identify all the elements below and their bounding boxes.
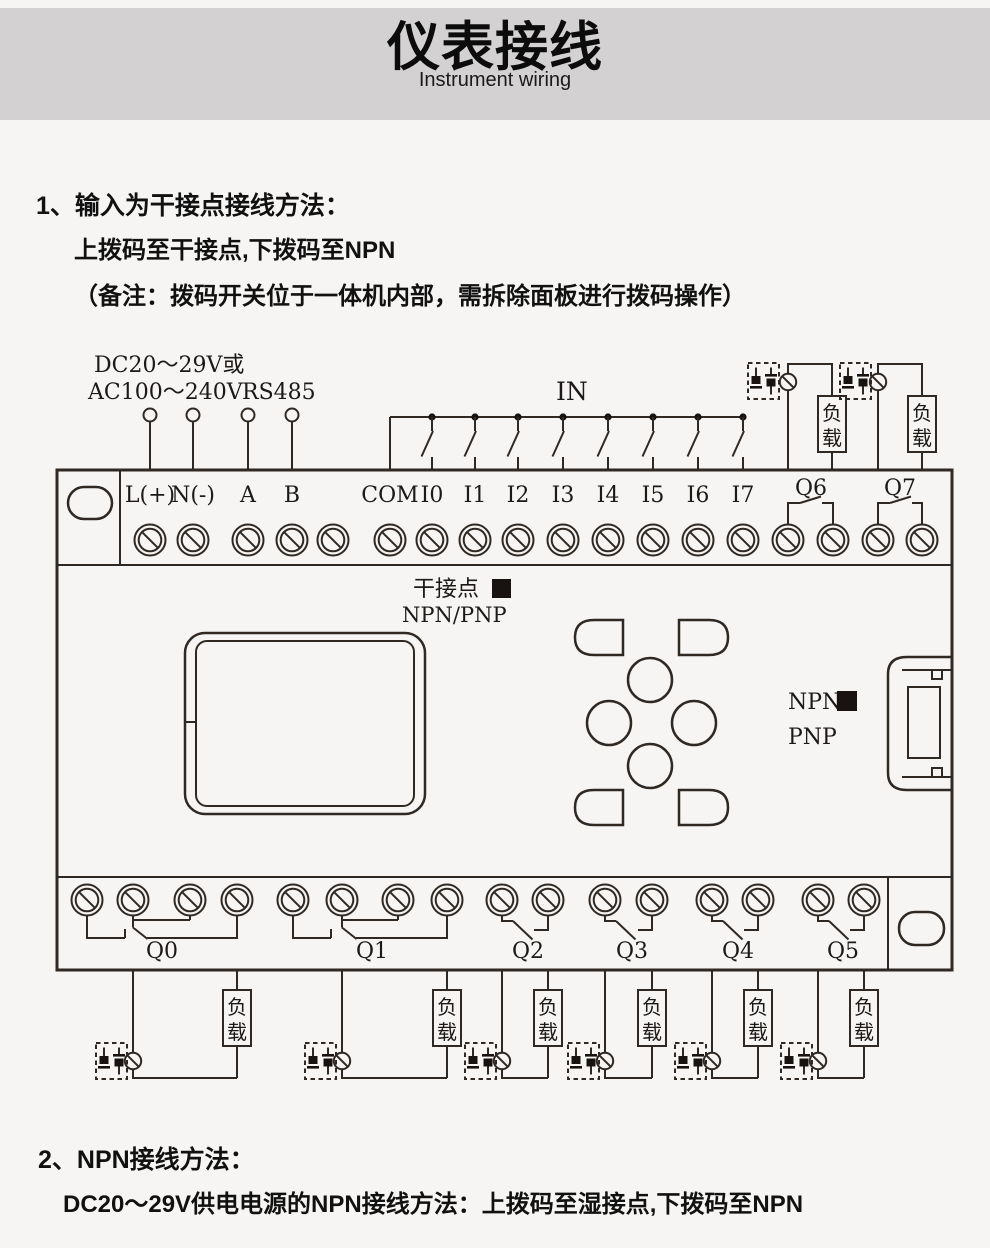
input-switch-i3 xyxy=(553,413,567,470)
input-switch-i0 xyxy=(422,413,436,470)
svg-text:负: 负 xyxy=(912,401,932,425)
in-label: IN xyxy=(556,377,588,406)
q7-suppressor xyxy=(840,363,871,399)
q6-load: 负 载 xyxy=(818,396,846,452)
in-bus-wire xyxy=(390,417,743,470)
svg-text:载: 载 xyxy=(642,1020,662,1044)
input-switch-i7 xyxy=(733,413,747,470)
q2-load: 负 载 xyxy=(534,990,562,1046)
svg-text:I3: I3 xyxy=(552,483,575,508)
q1-suppressor xyxy=(305,1043,336,1079)
q3-suppressor xyxy=(568,1043,599,1079)
key-up[interactable] xyxy=(628,658,672,702)
section2-line2: DC20～29V供电电源的NPN接线方法：上拨码至湿接点,下拨码至NPN xyxy=(63,1184,803,1219)
npn-label: NPN xyxy=(788,690,841,715)
svg-text:Q2: Q2 xyxy=(512,939,544,964)
svg-text:Q4: Q4 xyxy=(722,939,754,964)
svg-text:负: 负 xyxy=(854,995,874,1019)
dry-contact-indicator-square xyxy=(492,579,511,598)
power-label-line2: AC100～240V xyxy=(87,380,244,405)
svg-text:I6: I6 xyxy=(687,483,710,508)
q0-load: 负 载 xyxy=(223,990,251,1046)
svg-text:载: 载 xyxy=(538,1020,558,1044)
side-connector xyxy=(888,657,951,790)
display-screen xyxy=(185,633,425,814)
input-switch-i6 xyxy=(688,413,702,470)
q4-load: 负 载 xyxy=(744,990,772,1046)
q4-suppressor xyxy=(675,1043,706,1079)
bottom-output-labels: Q0 Q1 Q2 Q3 Q4 Q5 xyxy=(146,939,859,964)
key-top-left[interactable] xyxy=(575,620,623,655)
power-input-wires xyxy=(150,422,292,471)
q3-load: 负 载 xyxy=(638,990,666,1046)
q5-suppressor xyxy=(781,1043,812,1079)
svg-text:载: 载 xyxy=(748,1020,768,1044)
svg-text:I0: I0 xyxy=(421,483,444,508)
key-top-right[interactable] xyxy=(679,620,728,655)
q7-power-source xyxy=(870,374,886,390)
q7-load: 负 载 xyxy=(908,396,936,452)
svg-text:B: B xyxy=(284,483,300,508)
key-down[interactable] xyxy=(628,744,672,788)
q6-power-source xyxy=(780,374,796,390)
rs485-label: RS485 xyxy=(242,380,316,405)
top-terminal-screws xyxy=(135,525,938,556)
power-label-line1: DC20～29V或 xyxy=(94,353,244,378)
input-switch-i1 xyxy=(465,413,479,470)
svg-text:COM: COM xyxy=(361,483,418,508)
svg-text:负: 负 xyxy=(822,401,842,425)
input-switch-i4 xyxy=(598,413,612,470)
q6-external-circuit: 负 载 xyxy=(748,363,846,470)
pnp-label: PNP xyxy=(788,725,837,750)
keypad xyxy=(575,620,728,825)
svg-text:I7: I7 xyxy=(732,483,755,508)
svg-text:I4: I4 xyxy=(597,483,620,508)
input-bus xyxy=(390,413,747,470)
svg-text:负: 负 xyxy=(227,995,247,1019)
mount-hole-top xyxy=(68,487,112,519)
svg-text:N(-): N(-) xyxy=(171,483,215,508)
svg-text:Q5: Q5 xyxy=(827,939,859,964)
svg-text:L(+): L(+) xyxy=(125,483,175,508)
svg-text:载: 载 xyxy=(854,1020,874,1044)
svg-text:Q3: Q3 xyxy=(616,939,648,964)
svg-text:Q1: Q1 xyxy=(356,939,388,964)
key-right[interactable] xyxy=(672,701,716,745)
svg-text:负: 负 xyxy=(437,995,457,1019)
svg-text:载: 载 xyxy=(227,1020,247,1044)
section2-heading: 2、NPN接线方法： xyxy=(38,1140,255,1176)
key-left[interactable] xyxy=(587,701,631,745)
svg-text:I5: I5 xyxy=(642,483,665,508)
power-input-terminals xyxy=(144,409,299,471)
svg-text:负: 负 xyxy=(748,995,768,1019)
key-bottom-right[interactable] xyxy=(679,790,728,825)
svg-text:载: 载 xyxy=(822,426,842,450)
svg-text:A: A xyxy=(239,483,257,508)
key-bottom-left[interactable] xyxy=(575,790,623,825)
mount-hole-bottom xyxy=(899,912,944,945)
q0-suppressor xyxy=(96,1043,127,1079)
input-switch-i5 xyxy=(643,413,657,470)
svg-text:负: 负 xyxy=(538,995,558,1019)
npn-indicator-square xyxy=(837,691,857,711)
q6-label: Q6 xyxy=(795,476,827,501)
svg-text:载: 载 xyxy=(437,1020,457,1044)
output-contact-symbols xyxy=(87,916,864,940)
svg-text:载: 载 xyxy=(912,426,932,450)
wiring-diagram: DC20～29V或 AC100～240V RS485 IN 负 载 xyxy=(0,0,990,1248)
q2-suppressor xyxy=(465,1043,496,1079)
svg-text:负: 负 xyxy=(642,995,662,1019)
input-switch-i2 xyxy=(508,413,522,470)
q7-external-circuit: 负 载 xyxy=(840,363,936,470)
svg-text:Q0: Q0 xyxy=(146,939,178,964)
svg-text:I2: I2 xyxy=(507,483,530,508)
q6-suppressor xyxy=(748,363,779,399)
bottom-terminal-screws xyxy=(72,885,880,916)
npn-pnp-label: NPN/PNP xyxy=(402,603,507,627)
q5-load: 负 载 xyxy=(850,990,878,1046)
svg-text:I1: I1 xyxy=(464,483,487,508)
dry-contact-label: 干接点 xyxy=(413,577,479,602)
q1-load: 负 载 xyxy=(433,990,461,1046)
